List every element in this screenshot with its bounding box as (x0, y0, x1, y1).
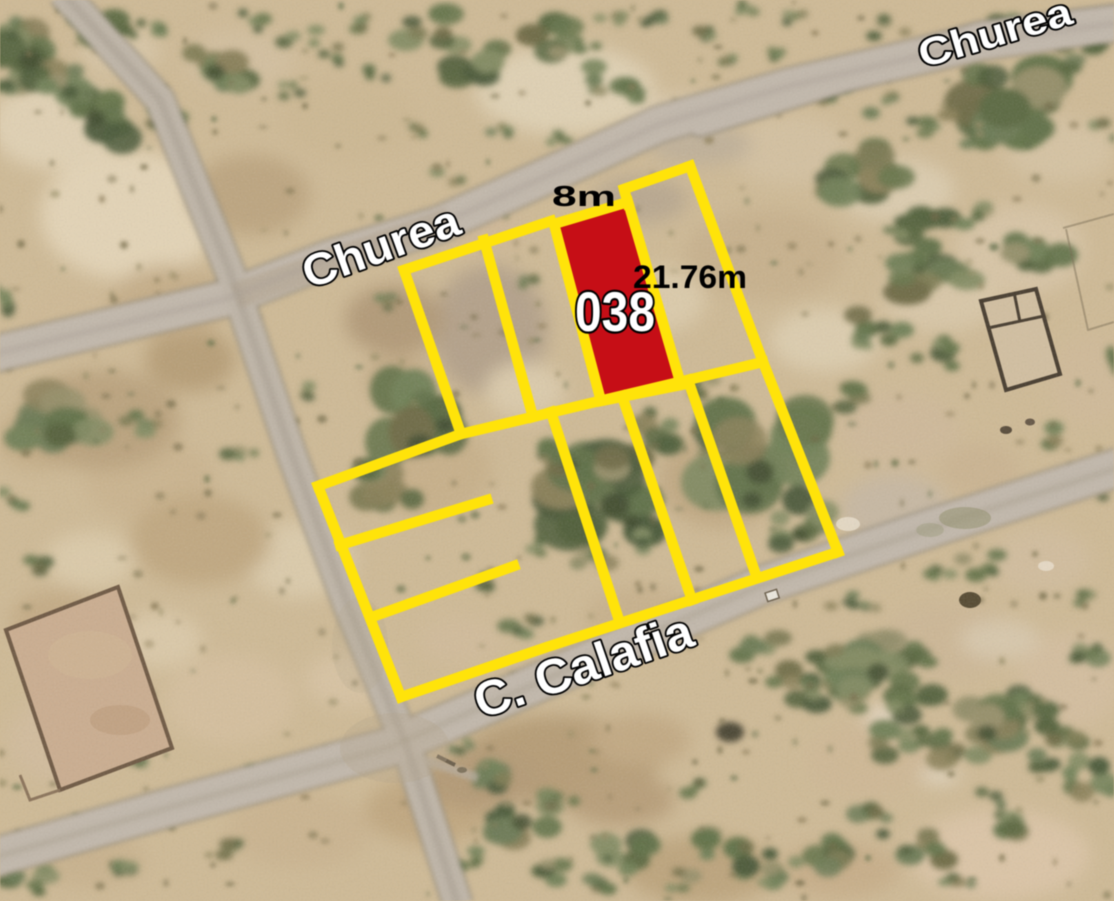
svg-text:8m: 8m (552, 181, 616, 213)
svg-text:038: 038 (575, 280, 655, 343)
